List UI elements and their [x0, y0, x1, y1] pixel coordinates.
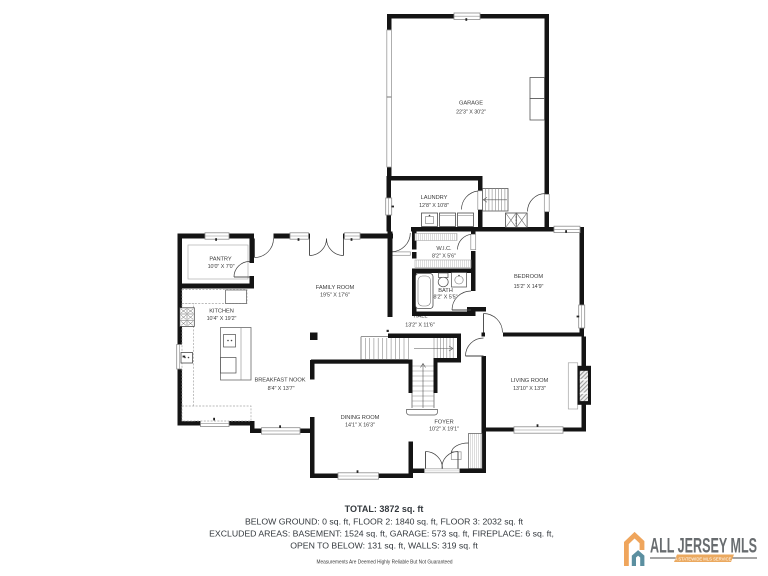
svg-text:FAMILY ROOM: FAMILY ROOM: [316, 285, 355, 291]
svg-text:KITCHEN: KITCHEN: [209, 309, 234, 315]
svg-text:8'4" X 13'7": 8'4" X 13'7": [268, 386, 295, 392]
svg-text:8'2" X 5'5": 8'2" X 5'5": [434, 294, 458, 300]
svg-text:DINING ROOM: DINING ROOM: [341, 415, 380, 421]
svg-text:LIVING ROOM: LIVING ROOM: [511, 378, 549, 384]
svg-text:12'8" X 10'8": 12'8" X 10'8": [419, 203, 449, 209]
svg-text:13'10" X 13'3": 13'10" X 13'3": [513, 386, 546, 392]
svg-text:19'5" X 17'6": 19'5" X 17'6": [320, 292, 350, 298]
svg-text:15'2" X 14'9": 15'2" X 14'9": [514, 284, 544, 290]
svg-text:PANTRY: PANTRY: [209, 257, 231, 263]
svg-text:BATH: BATH: [438, 288, 453, 294]
svg-text:14'1" X 16'3": 14'1" X 16'3": [345, 422, 375, 428]
svg-text:10'4" X 19'2": 10'4" X 19'2": [207, 316, 237, 322]
svg-text:BELOW GROUND: 0 sq. ft, FLOOR: BELOW GROUND: 0 sq. ft, FLOOR 2: 1840 sq…: [245, 517, 524, 527]
svg-text:A STATEWIDE MLS SERVICE: A STATEWIDE MLS SERVICE: [675, 556, 732, 561]
svg-text:EXCLUDED AREAS: BASEMENT: 1524: EXCLUDED AREAS: BASEMENT: 1524 sq. ft, G…: [209, 529, 554, 539]
svg-text:BREAKFAST NOOK: BREAKFAST NOOK: [254, 378, 305, 384]
svg-text:13'2" X 11'6": 13'2" X 11'6": [405, 322, 435, 328]
svg-text:BEDROOM: BEDROOM: [514, 274, 543, 280]
svg-text:8'2" X 5'6": 8'2" X 5'6": [432, 253, 456, 259]
svg-text:ALL JERSEY MLS: ALL JERSEY MLS: [650, 534, 757, 558]
svg-text:OPEN TO BELOW: 131 sq. ft, WAL: OPEN TO BELOW: 131 sq. ft, WALLS: 319 sq…: [290, 541, 478, 551]
svg-text:Measurements Are Deemed Highly: Measurements Are Deemed Highly Reliable …: [317, 559, 453, 565]
svg-text:10'2" X 19'1": 10'2" X 19'1": [429, 427, 459, 433]
svg-text:FOYER: FOYER: [434, 420, 453, 426]
svg-text:22'3" X 30'2": 22'3" X 30'2": [456, 110, 486, 116]
svg-text:W.I.C.: W.I.C.: [436, 246, 452, 252]
svg-text:LAUNDRY: LAUNDRY: [421, 195, 448, 201]
svg-text:GARAGE: GARAGE: [459, 101, 483, 107]
svg-text:10'0" X 7'0": 10'0" X 7'0": [208, 264, 235, 270]
svg-text:TOTAL: 3872 sq. ft: TOTAL: 3872 sq. ft: [345, 504, 424, 514]
